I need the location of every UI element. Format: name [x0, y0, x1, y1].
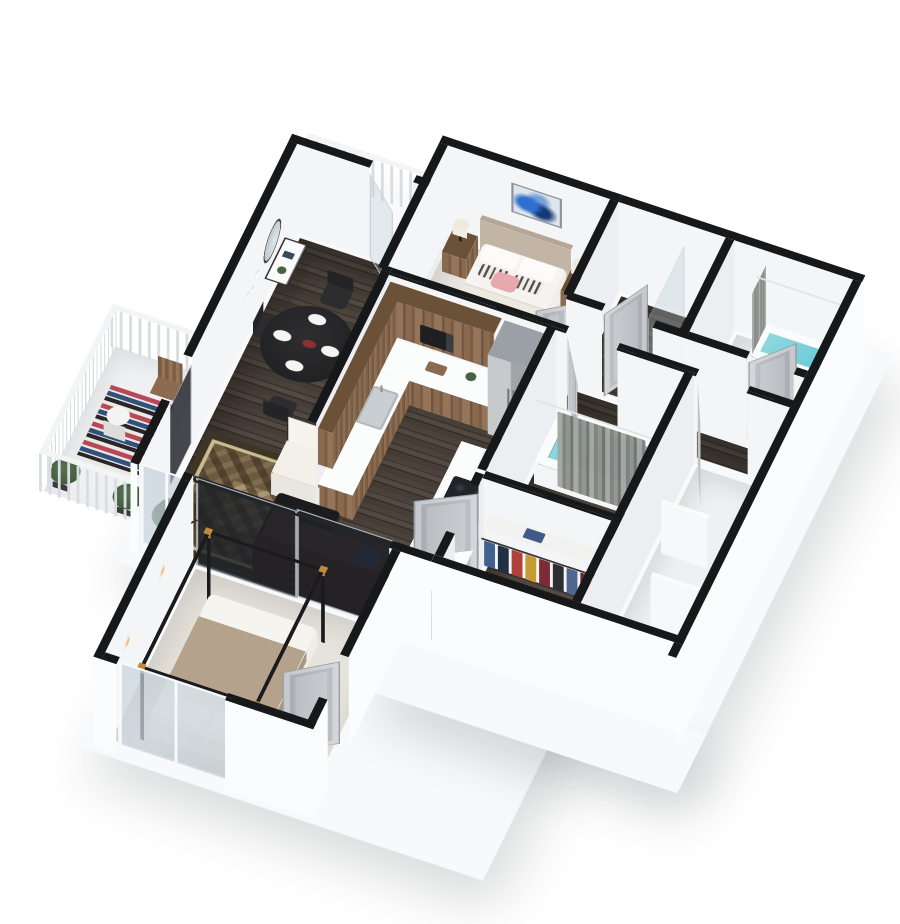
hanging-shirt [553, 563, 564, 592]
hanging-shirt [539, 559, 550, 588]
hanging-shirt [498, 545, 509, 574]
living-south-wall [130, 462, 137, 554]
faucet [380, 385, 382, 393]
floorplan-render [0, 0, 900, 900]
canopy-post [321, 575, 325, 643]
hanging-shirt [512, 550, 523, 579]
bedroom2-south-wall [93, 657, 116, 754]
uppers-west-end [318, 428, 332, 469]
hanging-shirt [484, 541, 495, 570]
hanging-shirt [525, 554, 536, 583]
